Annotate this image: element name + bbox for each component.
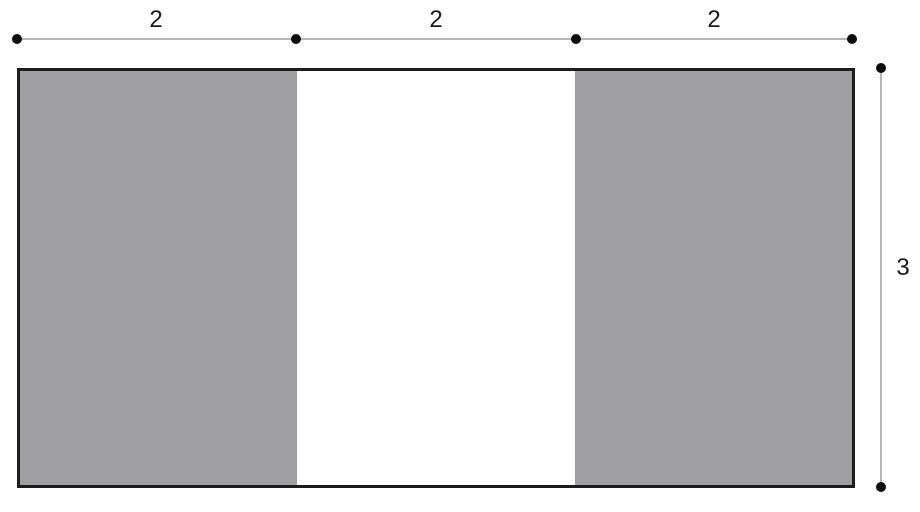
rectangle-outline bbox=[17, 68, 855, 488]
width-label-middle-segment: 2 bbox=[412, 8, 460, 32]
top-dimension-line bbox=[17, 38, 852, 40]
dimension-dot bbox=[876, 63, 886, 73]
dimension-dot bbox=[291, 34, 301, 44]
dimension-dot bbox=[876, 482, 886, 492]
dimension-dot bbox=[571, 34, 581, 44]
side-dimension-line bbox=[880, 68, 882, 487]
width-label-right-segment: 2 bbox=[690, 8, 738, 32]
dimension-dot bbox=[12, 34, 22, 44]
shaded-left-region bbox=[20, 71, 297, 485]
height-label: 3 bbox=[889, 256, 917, 280]
shaded-right-region bbox=[575, 71, 852, 485]
dimension-dot bbox=[847, 34, 857, 44]
geometry-figure: 2 2 2 3 bbox=[0, 0, 920, 512]
unshaded-middle-region bbox=[297, 71, 574, 485]
width-label-left-segment: 2 bbox=[132, 8, 180, 32]
